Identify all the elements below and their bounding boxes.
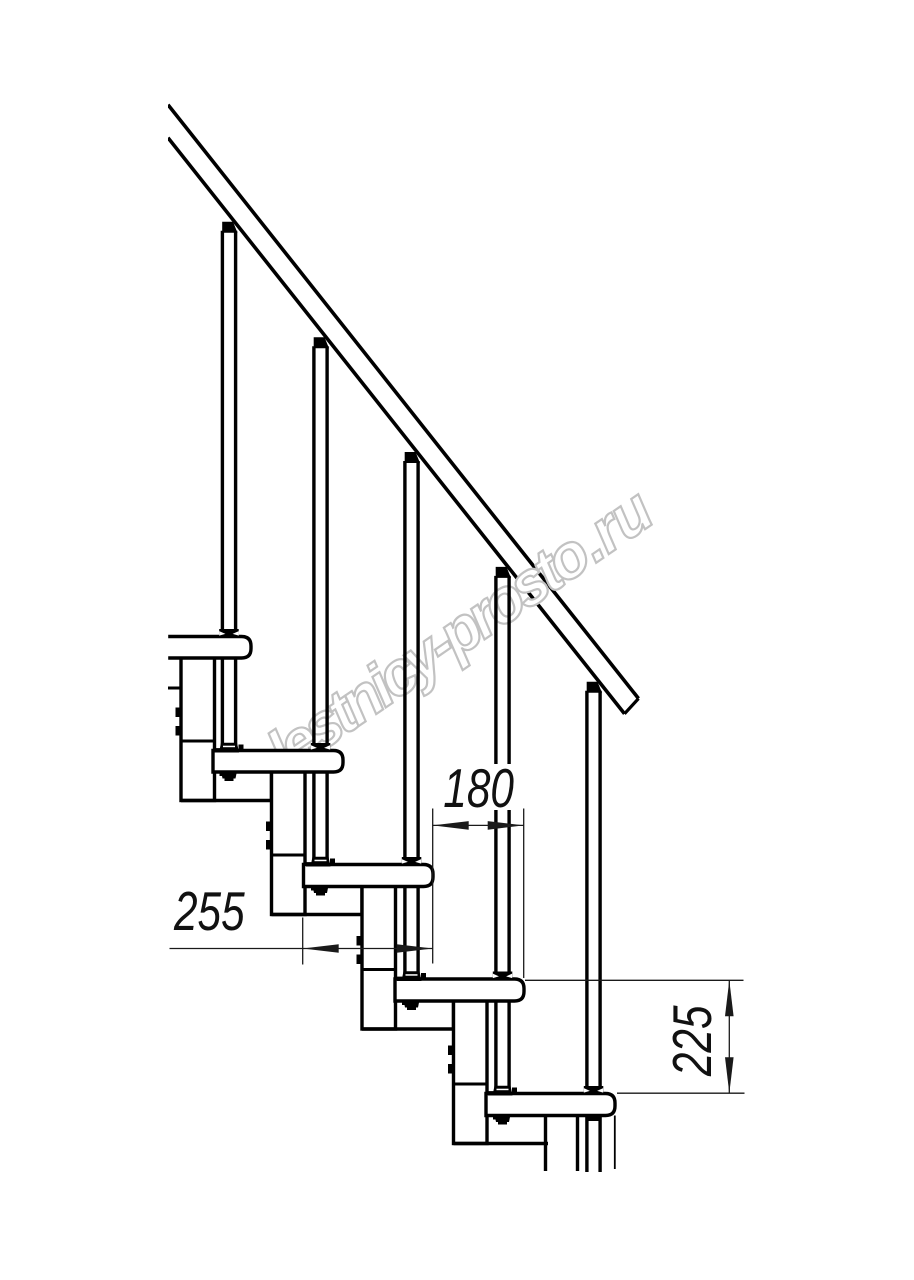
- svg-text:180: 180: [443, 759, 514, 820]
- svg-text:255: 255: [173, 882, 245, 943]
- svg-text:225: 225: [663, 1005, 724, 1077]
